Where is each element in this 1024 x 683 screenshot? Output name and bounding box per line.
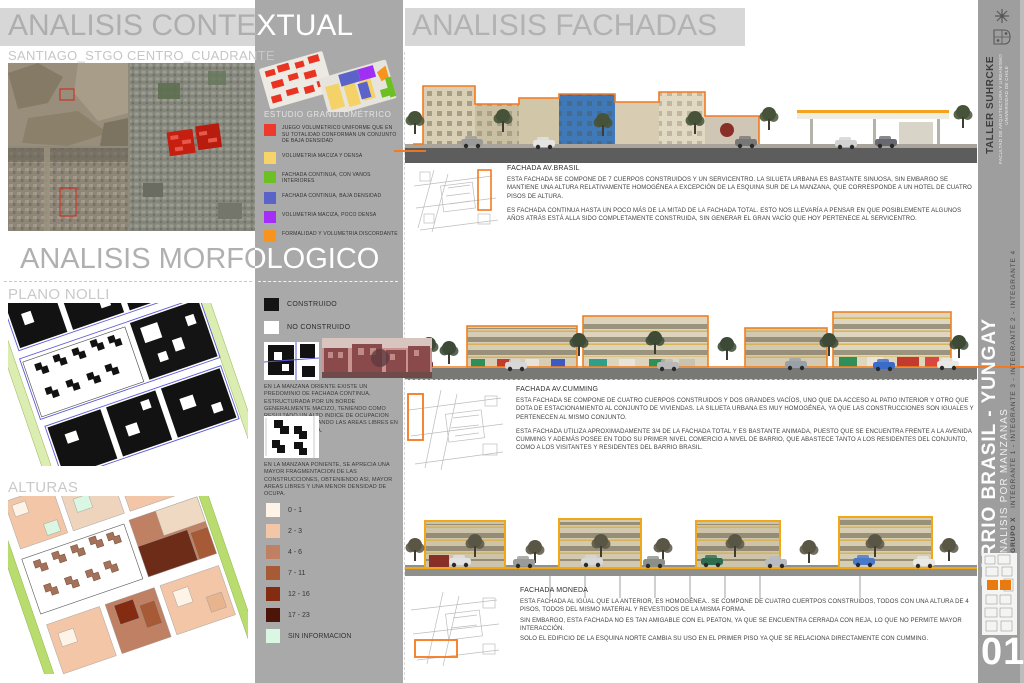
legend-item: FACHADA CONTINUA, CON VANOS INTERIORES <box>264 171 398 185</box>
nolli-map <box>8 303 248 466</box>
alturas-map <box>8 496 248 674</box>
legend-label: VOLUMETRIA MACIZA, POCO DENSA <box>282 211 376 219</box>
orange-connector <box>396 150 426 152</box>
fachada-paragraph: ESTA FACHADA UTILIZA APROXIMADAMENTE 3/4… <box>516 428 974 453</box>
legend-label: VOLUMETRIA MACIZA Y DENSA <box>282 152 362 160</box>
legend-item: 2 - 3 <box>266 524 351 538</box>
fachada-paragraph: ES FACHADA CONTINUA HASTA UN POCO MÁS DE… <box>507 207 974 224</box>
legend-swatch <box>264 124 276 136</box>
fachada-paragraph: SIN EMBARGO, ESTA FACHADA NO ES TAN AMIG… <box>520 617 975 634</box>
fachada-brasil-text: FACHADA AV.BRASIL ESTA FACHADA SE COMPON… <box>507 165 974 229</box>
legend-swatch <box>266 587 280 601</box>
fachadas-title: ANALISIS FACHADAS <box>412 11 717 41</box>
legend-label: JUEGO VOLUMETRICO UNIFORME QUE EN SU TOT… <box>282 124 398 145</box>
poster-page: ANALISIS CONTEXTUAL ANALISIS CONTEXTUAL … <box>0 0 1024 683</box>
legend-label: FACHADA CONTINUA, BAJA DENSIDAD <box>282 192 381 200</box>
group-name: GRUPO X <box>1010 517 1017 553</box>
fachada-heading: FACHADA AV.BRASIL <box>507 165 974 172</box>
fachada-paragraph: ESTA FACHADA SE COMPONE DE 7 CUERPOS CON… <box>507 176 974 201</box>
legend-swatch <box>266 503 280 517</box>
fachada-paragraph: ESTA FACHADA AL IGUAL QUE LA ANTERIOR, E… <box>520 598 975 615</box>
facultad-name: FACULTAD DE ARQUITECTURA Y URBANISMO <box>998 54 1003 164</box>
legend-item: 7 - 11 <box>266 566 351 580</box>
legend-swatch <box>264 321 279 334</box>
alturas-legend: 0 - 1 2 - 3 4 - 6 7 - 11 12 - 16 <box>266 503 351 643</box>
legend-label: FACHADA CONTINUA, CON VANOS INTERIORES <box>282 171 398 185</box>
fachada-paragraph: ESTA FACHADA SE COMPONE DE CUATRO CUERPO… <box>516 397 974 422</box>
divider-center <box>258 281 398 282</box>
manzana-oriente-photo <box>322 338 432 378</box>
legend-item: VOLUMETRIA MACIZA, POCO DENSA <box>264 211 398 223</box>
fachada-brasil-photo <box>405 58 977 163</box>
legend-label: CONSTRUIDO <box>287 301 337 308</box>
manzana-poniente-map <box>264 416 319 458</box>
divider-right <box>405 379 977 380</box>
legend-item: 17 - 23 <box>266 608 351 622</box>
legend-swatch <box>264 230 276 242</box>
morfologico-title-overlay: ANALISIS MORFOLOGICO <box>255 240 403 282</box>
legend-swatch <box>266 566 280 580</box>
legend-swatch <box>264 211 276 223</box>
satellite-map-composite <box>8 63 255 231</box>
legend-item: CONSTRUIDO <box>264 298 350 311</box>
fachada-cumming-photo <box>405 296 977 380</box>
nolli-legend: CONSTRUIDO NO CONSTRUIDO <box>264 298 350 334</box>
poniente-text: EN LA MANZANA PONIENTE, SE APRECIA UNA M… <box>264 462 398 498</box>
legend-item: VOLUMETRIA MACIZA Y DENSA <box>264 152 398 164</box>
project-title: BARRIO BRASIL - YUNGAY <box>979 318 1001 587</box>
legend-item: FORMALIDAD Y VOLUMETRIA DISCORDANTE <box>264 230 398 242</box>
legend-swatch <box>266 524 280 538</box>
granulometrico-title: ESTUDIO GRANULOMÉTRICO <box>264 110 391 119</box>
legend-item: 4 - 6 <box>266 545 351 559</box>
legend-label: 12 - 16 <box>288 591 310 598</box>
sidebar-key-map <box>982 553 1017 635</box>
taller-name: TALLER SUHRCKE <box>985 56 996 154</box>
fachada-cumming-text: FACHADA AV.CUMMING ESTA FACHADA SE COMPO… <box>516 386 974 459</box>
group-members: INTEGRANTE 1 - INTEGRANTE 3 - INTEGRANTE… <box>1010 250 1017 508</box>
taller-logo-icon <box>994 8 1010 24</box>
fachada-moneda-text: FACHADA MONEDA ESTA FACHADA AL IGUAL QUE… <box>520 587 975 649</box>
legend-item: 12 - 16 <box>266 587 351 601</box>
legend-item: SIN INFORMACION <box>266 629 351 643</box>
legend-swatch <box>264 298 279 311</box>
legend-label: SIN INFORMACION <box>288 633 351 640</box>
universidad-shield-icon <box>993 29 1011 45</box>
sidebar-edge-strip <box>1020 0 1024 683</box>
alturas-heading: ALTURAS <box>8 479 78 496</box>
legend-label: 4 - 6 <box>288 549 302 556</box>
legend-label: NO CONSTRUIDO <box>287 324 350 331</box>
fachada-cumming-map <box>405 384 505 472</box>
fachada-heading: FACHADA AV.CUMMING <box>516 386 974 393</box>
page-number: 01 <box>981 633 1024 671</box>
group-credits: GRUPO X INTEGRANTE 1 - INTEGRANTE 3 - IN… <box>1010 250 1017 553</box>
legend-swatch <box>266 608 280 622</box>
nolli-heading: PLANO NOLLI <box>8 286 110 303</box>
legend-label: 7 - 11 <box>288 570 305 577</box>
legend-item: NO CONSTRUIDO <box>264 321 350 334</box>
divider-left <box>4 281 252 282</box>
project-subtitle: ANALISIS POR MANZANAS <box>999 408 1010 561</box>
legend-swatch <box>266 545 280 559</box>
legend-item: JUEGO VOLUMETRICO UNIFORME QUE EN SU TOT… <box>264 124 398 145</box>
legend-label: 0 - 1 <box>288 507 302 514</box>
legend-swatch <box>266 629 280 643</box>
legend-swatch <box>264 152 276 164</box>
legend-label: FORMALIDAD Y VOLUMETRIA DISCORDANTE <box>282 230 398 238</box>
granulometrico-legend: JUEGO VOLUMETRICO UNIFORME QUE EN SU TOT… <box>264 124 398 242</box>
legend-label: 2 - 3 <box>288 528 302 535</box>
legend-label: 17 - 23 <box>288 612 310 619</box>
fachada-moneda-map <box>409 588 501 666</box>
granulometric-3d-diagram <box>258 26 400 112</box>
legend-item: 0 - 1 <box>266 503 351 517</box>
fachada-heading: FACHADA MONEDA <box>520 587 975 594</box>
fachada-brasil-map <box>412 164 500 236</box>
manzana-oriente-map <box>264 342 319 380</box>
legend-swatch <box>264 192 276 204</box>
universidad-name: UNIVERSIDAD DE CHILE <box>1004 66 1009 125</box>
legend-item: FACHADA CONTINUA, BAJA DENSIDAD <box>264 192 398 204</box>
fachada-paragraph: SOLO EL EDIFICIO DE LA ESQUINA NORTE CAM… <box>520 635 975 643</box>
contextual-subtitle: SANTIAGO_STGO CENTRO_CUADRANTE <box>8 48 275 63</box>
legend-swatch <box>264 171 276 183</box>
fachada-moneda-photo <box>405 505 977 600</box>
